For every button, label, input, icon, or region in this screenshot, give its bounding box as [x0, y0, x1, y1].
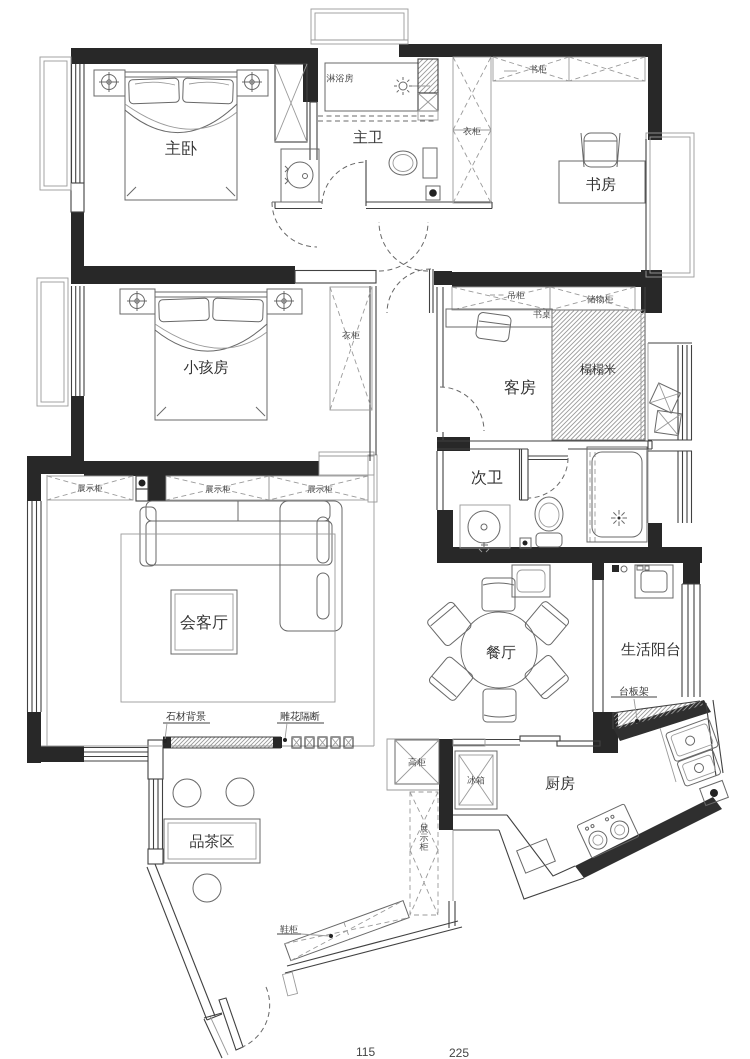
svg-text:115: 115 [356, 1045, 375, 1059]
svg-text:225: 225 [449, 1046, 469, 1059]
